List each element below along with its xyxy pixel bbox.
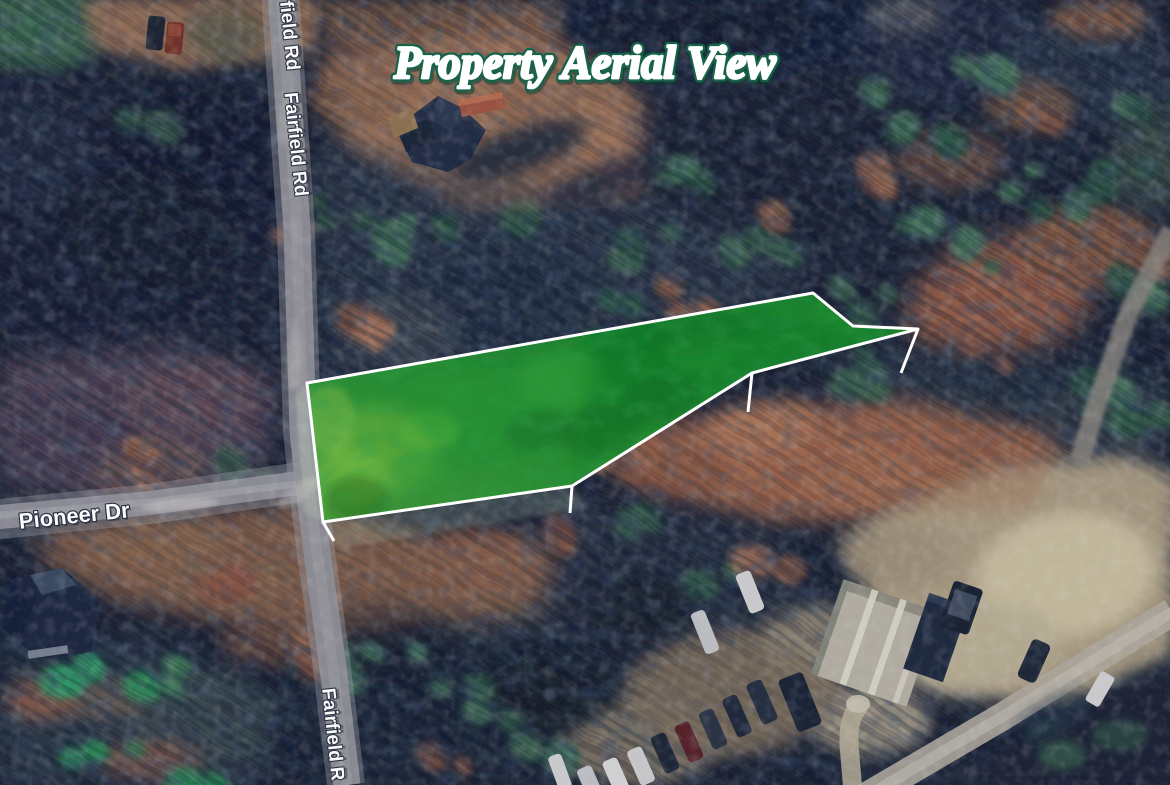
svg-text:Property Aerial View: Property Aerial View [393, 37, 777, 89]
